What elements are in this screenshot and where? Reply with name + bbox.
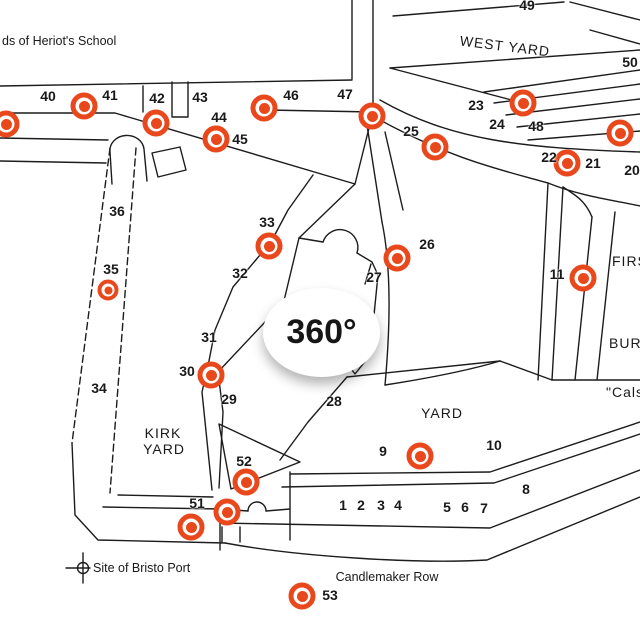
panorama-marker-3[interactable] <box>203 126 230 153</box>
panorama-marker-dot <box>430 142 441 153</box>
panorama-marker-dot <box>222 507 233 518</box>
panorama-marker-14[interactable] <box>198 362 225 389</box>
panorama-marker-13[interactable] <box>98 280 119 301</box>
plot-number-24: 24 <box>489 116 505 132</box>
plot-number-21: 21 <box>585 155 601 171</box>
plot-number-11: 11 <box>550 266 565 282</box>
plot-number-49: 49 <box>519 0 535 13</box>
map-note: Site of Bristo Port <box>93 561 190 575</box>
panorama-marker-dot <box>415 451 426 462</box>
plot-number-31: 31 <box>201 329 217 345</box>
panorama-360-badge[interactable]: 360° <box>263 288 380 377</box>
panorama-marker-dot <box>367 111 378 122</box>
bristo-port-symbol <box>66 553 90 583</box>
panorama-marker-dot <box>615 128 626 139</box>
panorama-marker-dot <box>259 103 270 114</box>
plot-number-52: 52 <box>236 453 252 469</box>
area-label: YARD <box>143 441 185 457</box>
panorama-marker-dot <box>264 241 275 252</box>
panorama-marker-8[interactable] <box>607 120 634 147</box>
map-note: Candlemaker Row <box>336 570 439 584</box>
plot-number-2: 2 <box>357 497 365 513</box>
plot-number-25: 25 <box>403 123 419 139</box>
kirkyard-map: 360° 40414243444546474950232448252221202… <box>0 0 640 640</box>
panorama-marker-dot <box>578 273 589 284</box>
panorama-marker-dot <box>104 286 112 294</box>
plot-number-7: 7 <box>480 500 488 516</box>
plot-number-23: 23 <box>468 97 484 113</box>
plot-number-47: 47 <box>337 86 353 102</box>
panorama-marker-dot <box>518 98 529 109</box>
panorama-marker-15[interactable] <box>407 443 434 470</box>
panorama-marker-dot <box>562 158 573 169</box>
plot-number-44: 44 <box>211 109 227 125</box>
plot-number-32: 32 <box>232 265 248 281</box>
plot-number-30: 30 <box>179 363 195 379</box>
plot-number-35: 35 <box>103 261 119 277</box>
panorama-marker-dot <box>186 522 197 533</box>
panorama-marker-4[interactable] <box>251 95 278 122</box>
panorama-marker-1[interactable] <box>71 93 98 120</box>
panorama-marker-2[interactable] <box>143 110 170 137</box>
plot-number-4: 4 <box>394 497 402 513</box>
plot-number-10: 10 <box>486 437 502 453</box>
plot-number-33: 33 <box>259 214 275 230</box>
panorama-marker-dot <box>392 253 403 264</box>
plot-number-51: 51 <box>189 495 205 511</box>
panorama-marker-18[interactable] <box>178 514 205 541</box>
area-label: KIRK <box>145 425 182 441</box>
panorama-360-label: 360° <box>286 313 356 352</box>
plot-number-42: 42 <box>149 90 165 106</box>
panorama-marker-12[interactable] <box>384 245 411 272</box>
panorama-marker-9[interactable] <box>554 150 581 177</box>
plot-number-9: 9 <box>379 443 387 459</box>
panorama-marker-17[interactable] <box>214 499 241 526</box>
panorama-marker-5[interactable] <box>359 103 386 130</box>
panorama-marker-dot <box>206 370 217 381</box>
plot-number-46: 46 <box>283 87 299 103</box>
plot-number-8: 8 <box>522 481 530 497</box>
panorama-marker-dot <box>79 101 90 112</box>
plot-number-41: 41 <box>102 87 118 103</box>
plot-number-26: 26 <box>419 236 435 252</box>
panorama-marker-7[interactable] <box>510 90 537 117</box>
panorama-marker-dot <box>297 591 308 602</box>
plot-number-43: 43 <box>192 89 208 105</box>
plot-number-53: 53 <box>322 587 338 603</box>
plot-number-27: 27 <box>366 269 382 285</box>
plot-number-3: 3 <box>377 497 385 513</box>
area-label: YARD <box>421 405 463 421</box>
plot-number-29: 29 <box>221 391 237 407</box>
plot-number-6: 6 <box>461 499 469 515</box>
plot-number-1: 1 <box>339 497 347 513</box>
plot-number-50: 50 <box>622 54 638 70</box>
plot-number-40: 40 <box>40 88 56 104</box>
panorama-marker-16[interactable] <box>233 469 260 496</box>
area-label: BURIA <box>609 335 640 351</box>
plot-number-5: 5 <box>443 499 451 515</box>
plot-number-45: 45 <box>232 131 248 147</box>
plot-number-28: 28 <box>326 393 342 409</box>
plot-number-48: 48 <box>528 118 544 134</box>
panorama-marker-dot <box>211 134 222 145</box>
panorama-marker-11[interactable] <box>256 233 283 260</box>
plot-number-36: 36 <box>109 203 125 219</box>
panorama-marker-19[interactable] <box>289 583 316 610</box>
plot-number-22: 22 <box>541 149 557 165</box>
panorama-marker-dot <box>151 118 162 129</box>
area-label: FIRS <box>612 253 640 269</box>
area-label: "Calsay <box>606 384 640 400</box>
panorama-marker-dot <box>241 477 252 488</box>
panorama-marker-6[interactable] <box>422 134 449 161</box>
plot-number-20: 20 <box>624 162 640 178</box>
map-note: ds of Heriot's School <box>2 34 116 48</box>
panorama-marker-dot <box>1 119 12 130</box>
panorama-marker-10[interactable] <box>570 265 597 292</box>
plot-number-34: 34 <box>91 380 107 396</box>
